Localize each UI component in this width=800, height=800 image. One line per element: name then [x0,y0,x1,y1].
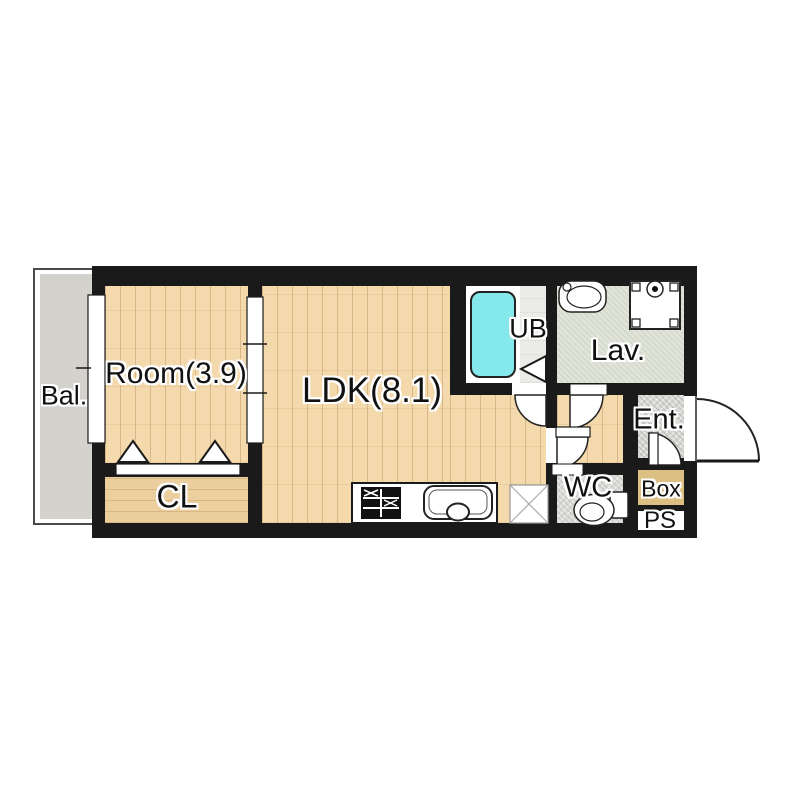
floorplan: Bal. Room(3.9) CL LDK(8.1) UB Lav. Ent. … [0,0,800,800]
room-label-ps: PS [644,507,676,535]
room-label-ldk: LDK(8.1) [302,371,442,411]
shoebox-door-arc [649,433,681,465]
kitchen-counter [352,483,497,523]
washbasin-icon [559,279,606,312]
room-label-cl: CL [157,479,198,516]
lavatory-door-arc [570,384,607,428]
room-label-lav: Lav. [591,334,645,368]
room-label-room: Room(3.9) [105,357,247,391]
closet-folding-doors-icon [116,441,240,475]
room-label-bal: Bal. [41,381,88,412]
washing-machine-icon [630,281,680,329]
window [76,295,105,443]
room-label-wc: WC [564,472,612,505]
stove-icon [361,487,401,519]
kitchen-sink-icon [424,486,492,521]
refrigerator-space-icon [510,485,548,523]
room-label-box: Box [641,476,681,503]
hall-door-arc [546,427,590,475]
entrance-door-arc [684,396,759,461]
room-label-ent: Ent. [633,404,685,437]
room-label-ub: UB [509,314,547,345]
